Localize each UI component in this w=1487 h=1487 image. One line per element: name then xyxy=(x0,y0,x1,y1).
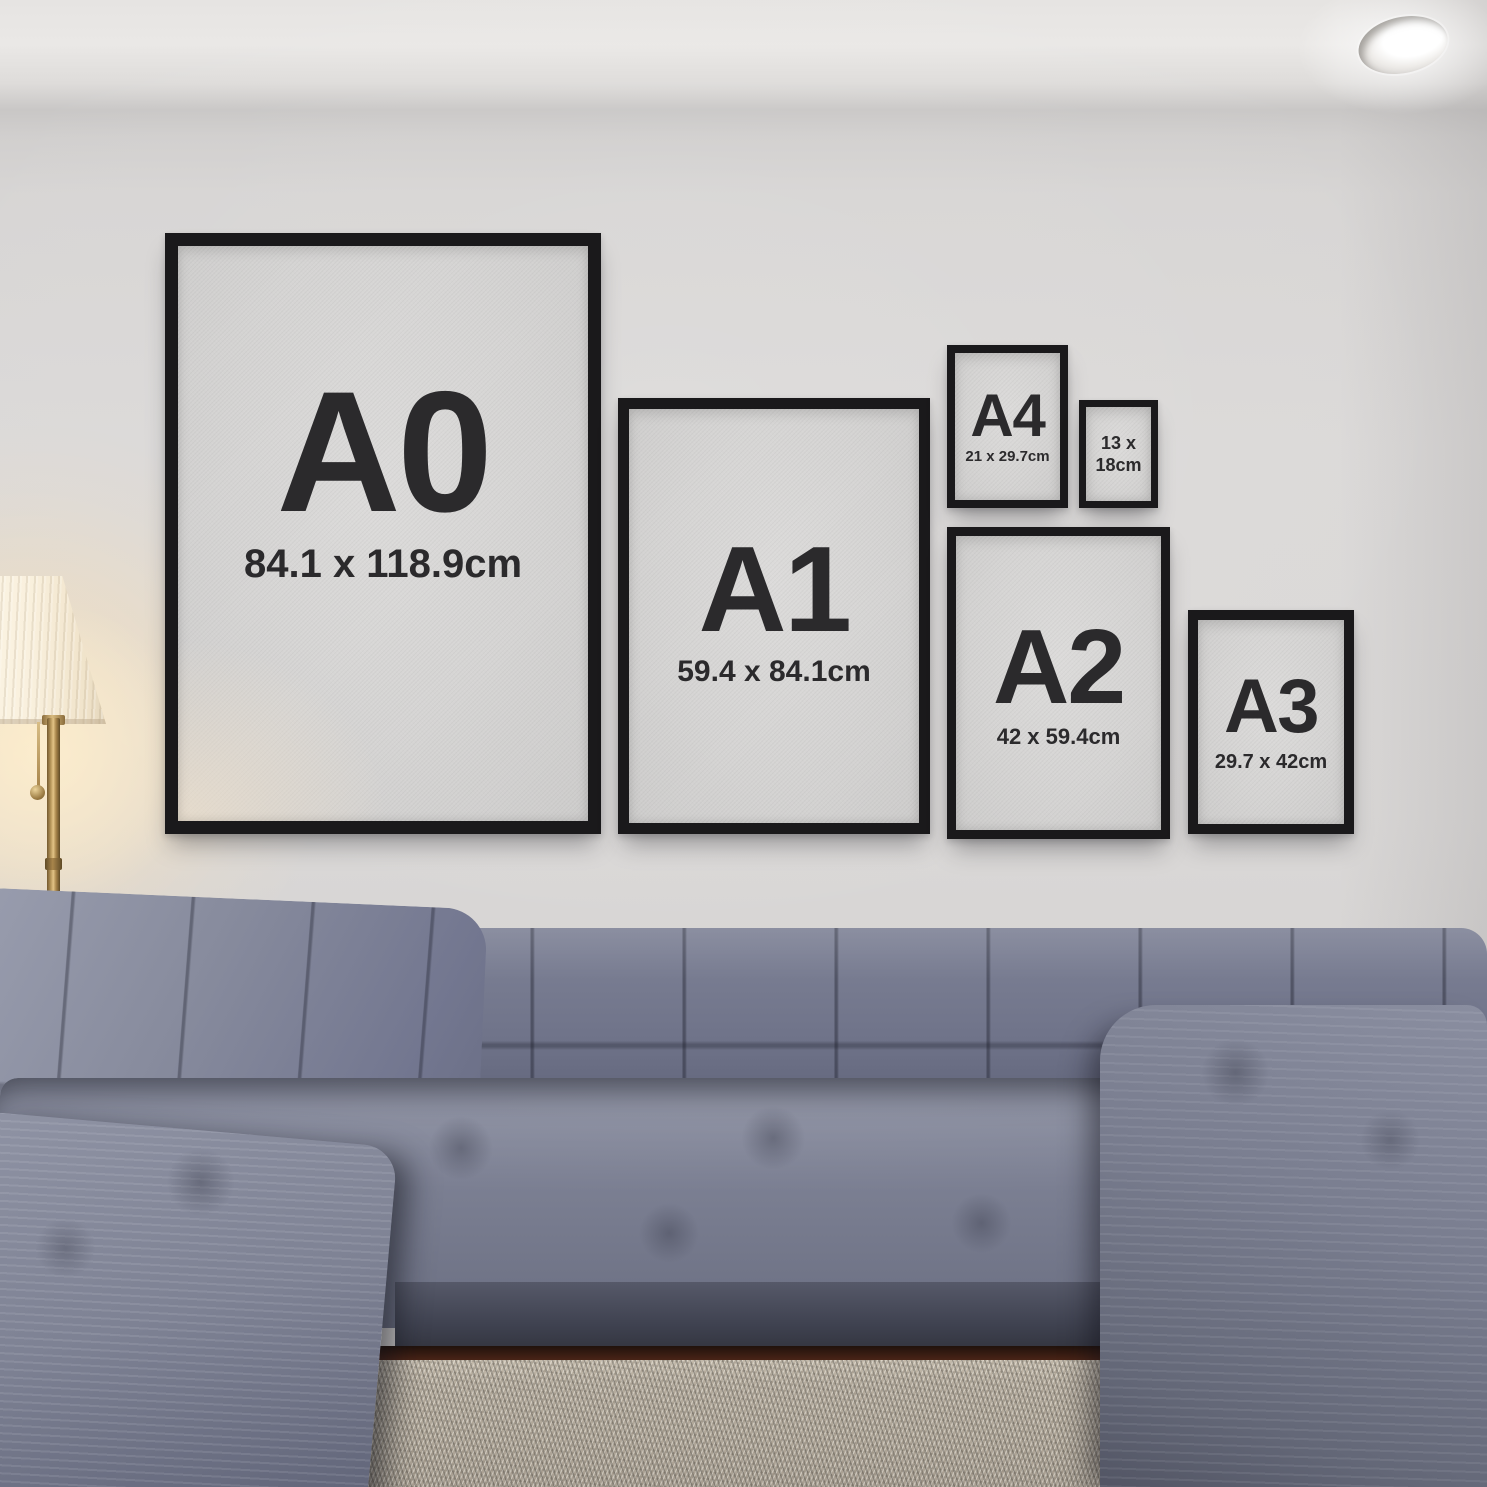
frame-13x18-size-line1: 13 x xyxy=(1101,432,1136,455)
lamp-pole-joint xyxy=(45,858,62,870)
lamp-pull-chain xyxy=(37,722,40,788)
frame-13x18-size-line2: 18cm xyxy=(1095,454,1141,477)
frame-a4-size: 21 x 29.7cm xyxy=(965,449,1049,466)
frame-a0-label: A0 xyxy=(277,371,490,534)
frame-a0-paper: A0 84.1 x 118.9cm xyxy=(178,246,588,821)
poster-frame-13x18: 13 x 18cm xyxy=(1079,400,1158,508)
poster-frame-a2: A2 42 x 59.4cm xyxy=(947,527,1170,839)
frame-a4-label: A4 xyxy=(970,387,1044,444)
sofa-left-chaise xyxy=(0,1110,398,1487)
living-room-scene: A0 84.1 x 118.9cm A1 59.4 x 84.1cm A4 21… xyxy=(0,0,1487,1487)
frame-a3-label: A3 xyxy=(1224,671,1318,743)
frame-a4-paper: A4 21 x 29.7cm xyxy=(955,353,1060,500)
poster-frame-a3: A3 29.7 x 42cm xyxy=(1188,610,1354,834)
frame-a0-size: 84.1 x 118.9cm xyxy=(244,542,522,586)
frame-a2-label: A2 xyxy=(993,617,1124,718)
frame-a3-size: 29.7 x 42cm xyxy=(1215,751,1327,773)
poster-frame-a1: A1 59.4 x 84.1cm xyxy=(618,398,930,834)
poster-frame-a4: A4 21 x 29.7cm xyxy=(947,345,1068,508)
frame-a2-size: 42 x 59.4cm xyxy=(997,725,1121,749)
frame-a1-label: A1 xyxy=(698,532,849,648)
frame-a3-paper: A3 29.7 x 42cm xyxy=(1198,620,1344,824)
sofa-right-chaise xyxy=(1100,1005,1487,1487)
frame-a1-size: 59.4 x 84.1cm xyxy=(677,655,871,688)
frame-13x18-paper: 13 x 18cm xyxy=(1086,407,1151,501)
lamp-chain-ball xyxy=(30,785,45,800)
frame-a1-paper: A1 59.4 x 84.1cm xyxy=(629,409,919,823)
poster-frame-a0: A0 84.1 x 118.9cm xyxy=(165,233,601,834)
frame-a2-paper: A2 42 x 59.4cm xyxy=(956,536,1161,830)
